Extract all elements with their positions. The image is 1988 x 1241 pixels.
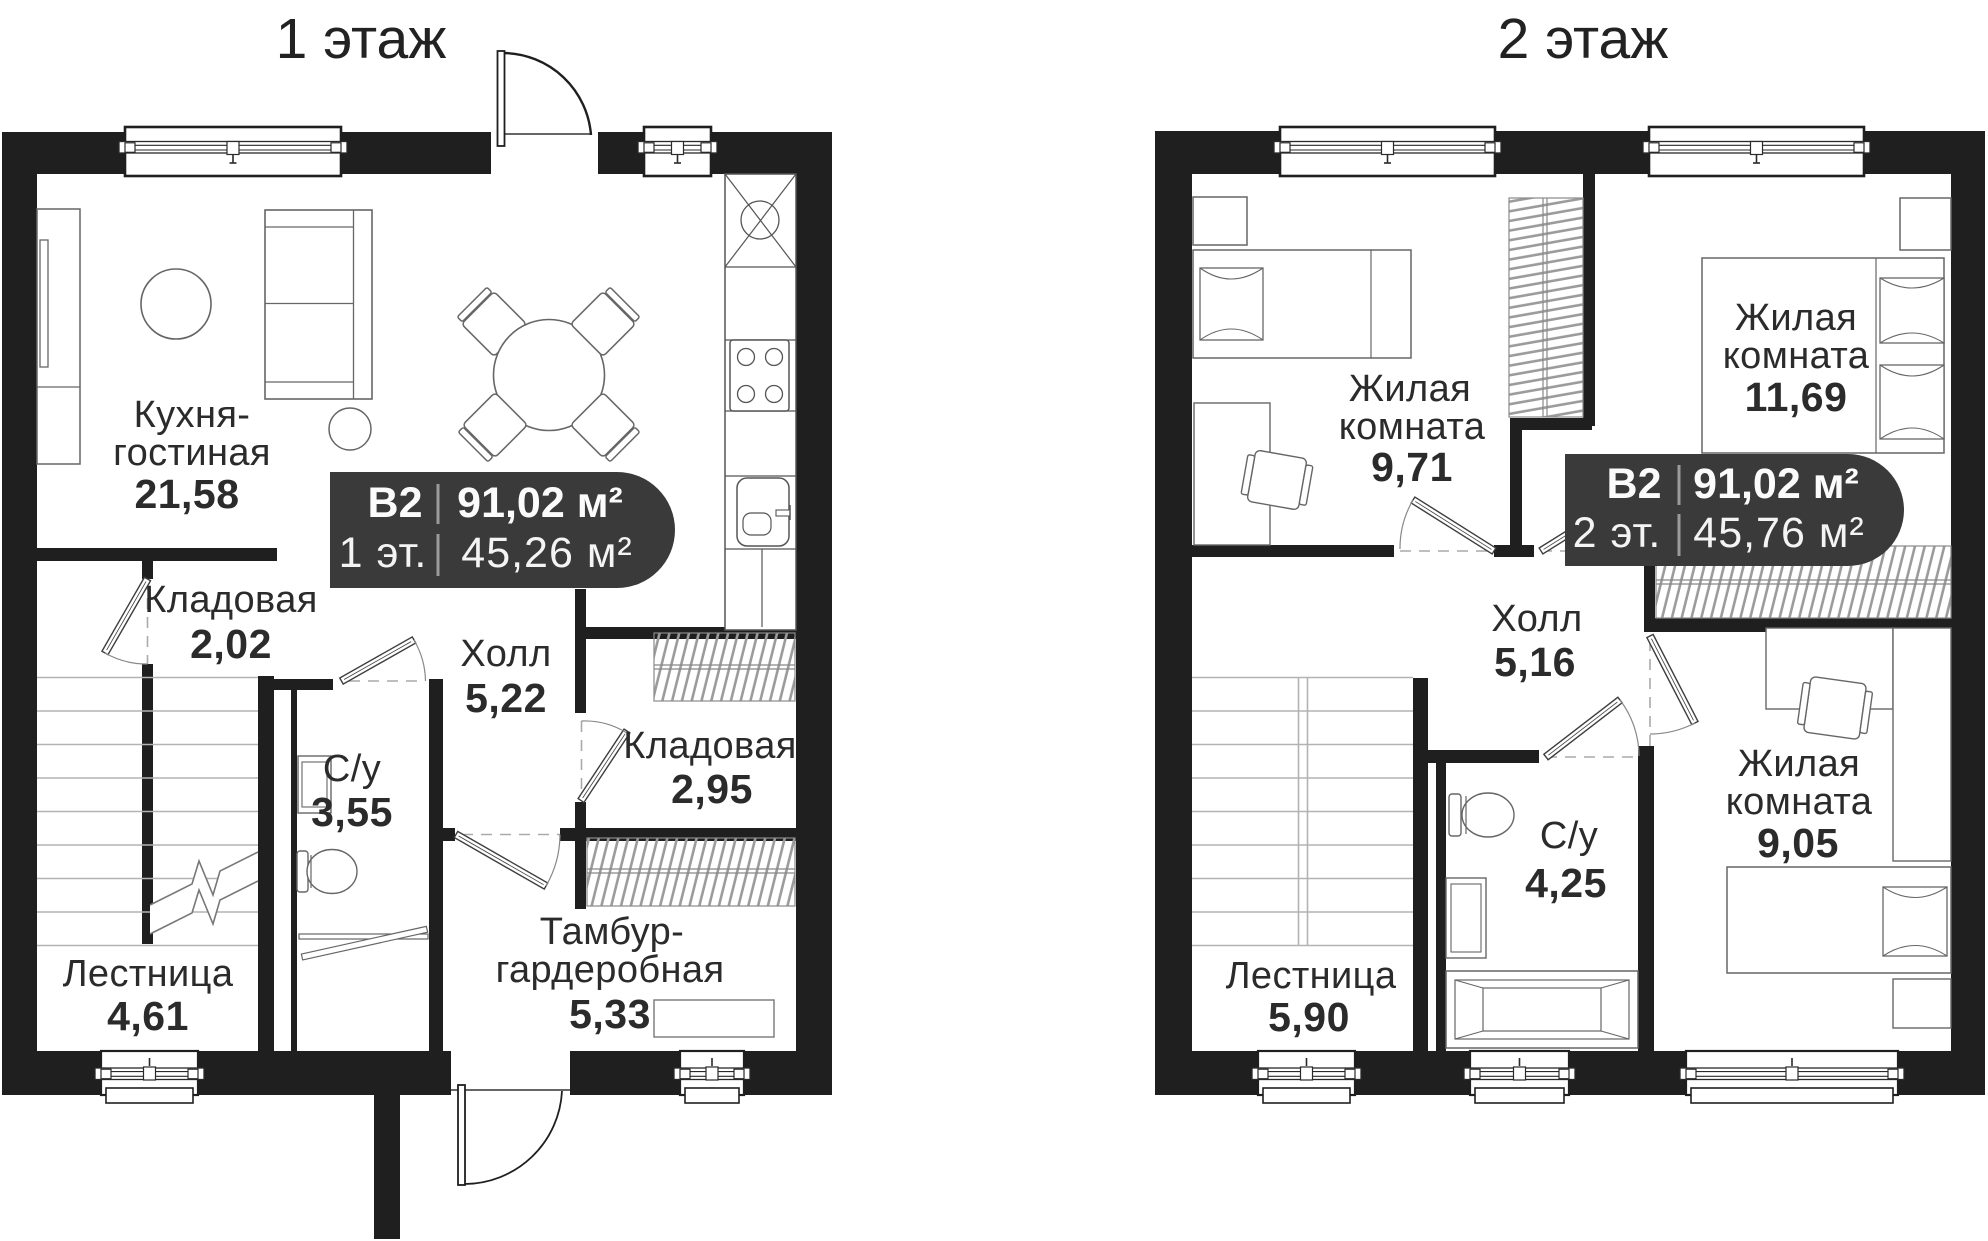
svg-text:2 этаж: 2 этаж <box>1498 7 1669 71</box>
svg-text:5,16: 5,16 <box>1494 639 1576 685</box>
svg-text:3,55: 3,55 <box>311 789 393 835</box>
svg-text:91,02 м²: 91,02 м² <box>457 479 623 527</box>
svg-text:2,02: 2,02 <box>190 621 272 667</box>
svg-text:Кладовая: Кладовая <box>623 725 796 767</box>
svg-text:1 эт.: 1 эт. <box>339 529 428 577</box>
svg-text:комната: комната <box>1723 335 1870 377</box>
svg-text:гардеробная: гардеробная <box>496 949 725 991</box>
svg-text:21,58: 21,58 <box>134 471 239 517</box>
svg-text:2,95: 2,95 <box>671 766 753 812</box>
svg-text:Холл: Холл <box>1491 598 1582 640</box>
svg-text:Жилая: Жилая <box>1738 743 1860 785</box>
svg-text:комната: комната <box>1339 406 1486 448</box>
svg-text:В2: В2 <box>368 479 423 527</box>
svg-text:4,61: 4,61 <box>107 993 189 1039</box>
svg-text:Кухня-: Кухня- <box>134 394 251 436</box>
svg-text:Лестница: Лестница <box>63 953 234 995</box>
svg-text:11,69: 11,69 <box>1745 374 1848 420</box>
svg-text:Кладовая: Кладовая <box>144 579 317 621</box>
svg-text:4,25: 4,25 <box>1525 860 1607 906</box>
svg-text:В2: В2 <box>1607 460 1662 508</box>
svg-text:2 эт.: 2 эт. <box>1573 509 1662 557</box>
svg-text:1 этаж: 1 этаж <box>276 7 447 71</box>
svg-text:91,02 м²: 91,02 м² <box>1693 460 1859 508</box>
svg-text:5,90: 5,90 <box>1268 994 1350 1040</box>
svg-text:С/у: С/у <box>1540 815 1598 857</box>
svg-text:Тамбур-: Тамбур- <box>540 911 684 953</box>
svg-text:9,05: 9,05 <box>1757 820 1839 866</box>
svg-text:45,26 м²: 45,26 м² <box>461 529 632 577</box>
svg-text:С/у: С/у <box>323 748 381 790</box>
svg-text:Жилая: Жилая <box>1735 297 1857 339</box>
svg-text:9,71: 9,71 <box>1371 444 1453 490</box>
svg-text:Жилая: Жилая <box>1349 368 1471 410</box>
svg-text:5,33: 5,33 <box>569 991 651 1037</box>
svg-text:гостиная: гостиная <box>113 432 271 474</box>
svg-text:45,76 м²: 45,76 м² <box>1693 509 1864 557</box>
svg-text:Холл: Холл <box>460 633 551 675</box>
svg-text:5,22: 5,22 <box>465 675 547 721</box>
svg-text:Лестница: Лестница <box>1226 955 1397 997</box>
svg-text:комната: комната <box>1726 781 1873 823</box>
